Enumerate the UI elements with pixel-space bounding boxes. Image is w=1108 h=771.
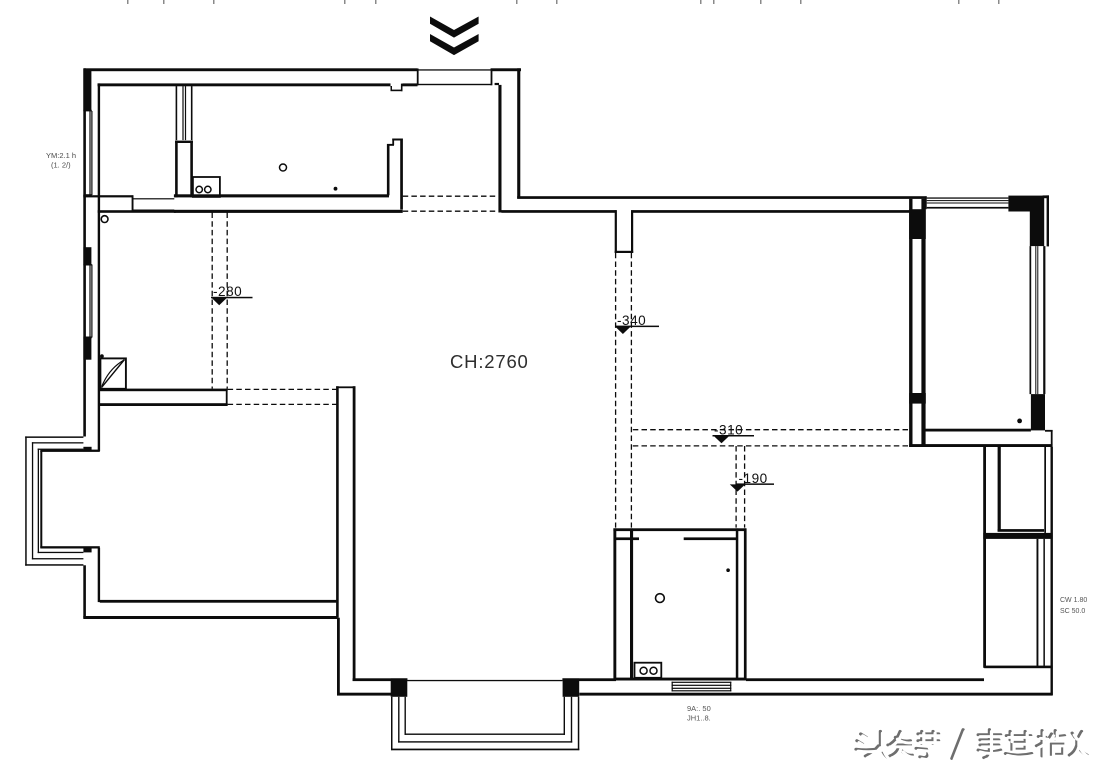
svg-text:SC 50.0: SC 50.0 xyxy=(1060,608,1085,615)
svg-text:JH1..8.: JH1..8. xyxy=(687,714,711,723)
svg-text:-280: -280 xyxy=(213,284,242,299)
svg-text:CW 1.80: CW 1.80 xyxy=(1060,597,1087,604)
svg-text:YM:2.1 h: YM:2.1 h xyxy=(46,151,76,160)
svg-text:(1. 2/): (1. 2/) xyxy=(51,161,71,170)
svg-text:9A:. 50: 9A:. 50 xyxy=(687,704,711,713)
svg-text:CH:2760: CH:2760 xyxy=(450,351,529,372)
